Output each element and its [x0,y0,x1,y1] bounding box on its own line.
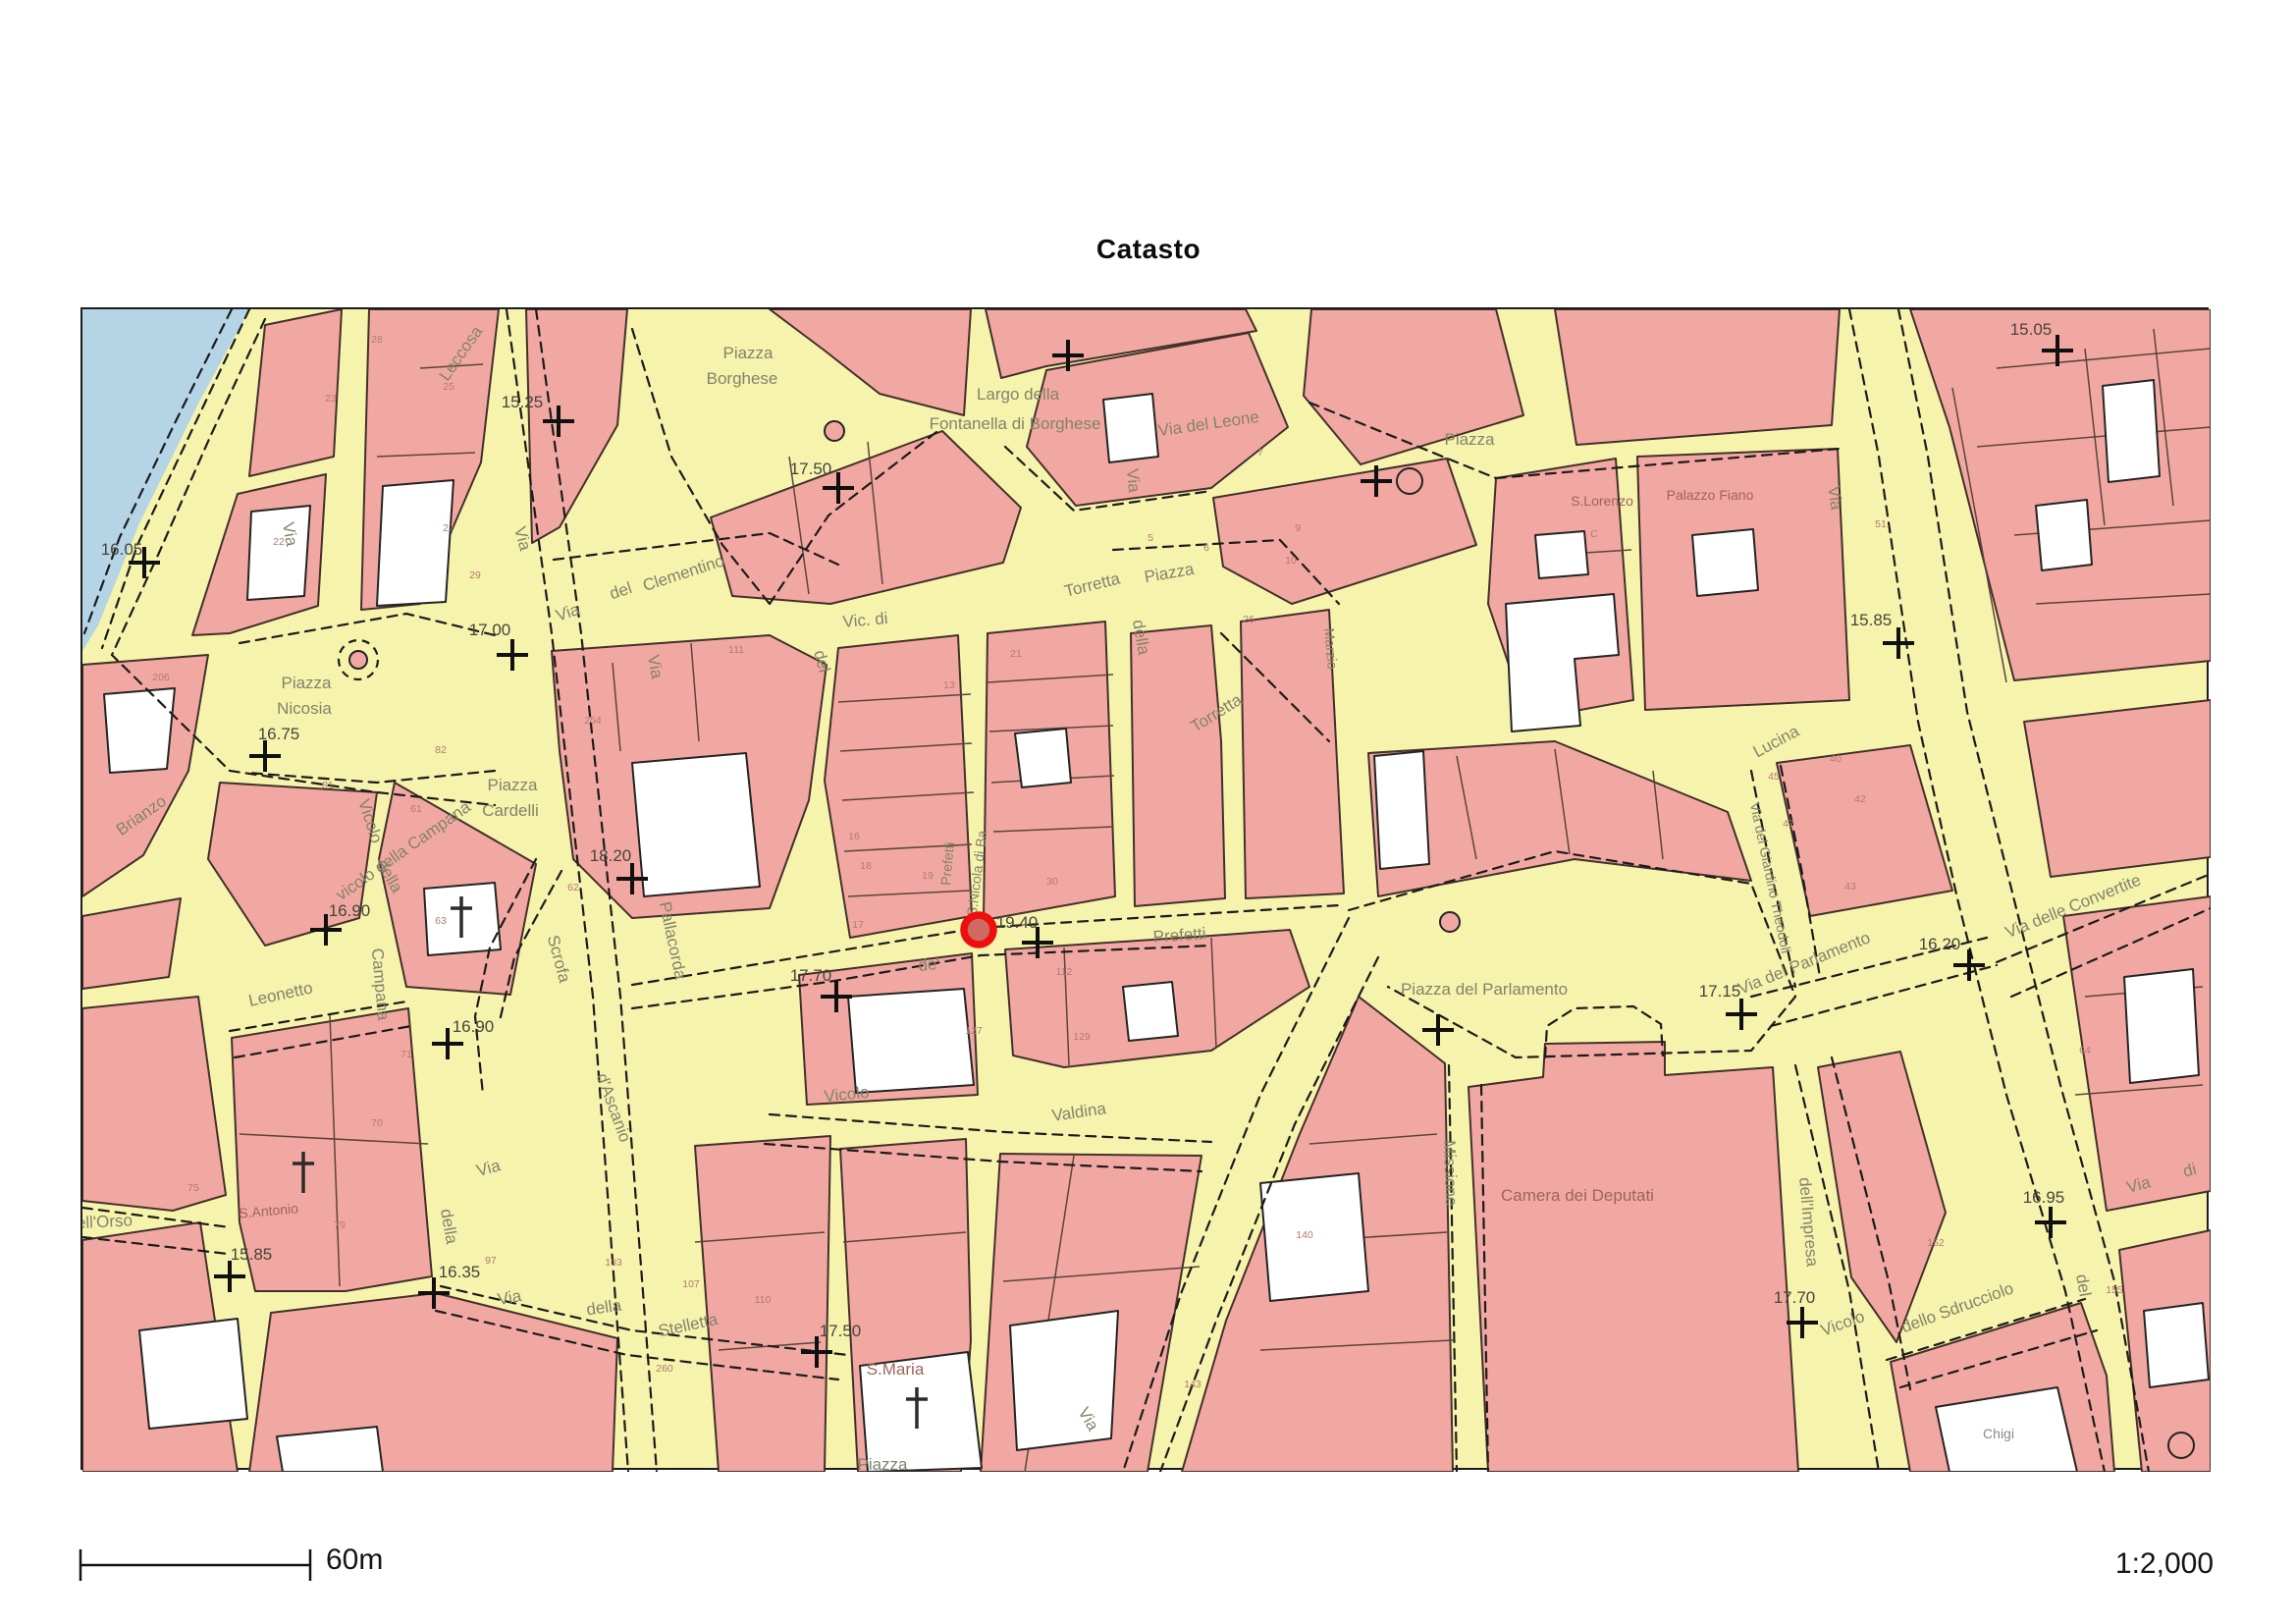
city-block [1131,625,1225,906]
building-footprint [1015,729,1071,787]
city-block [2024,700,2211,877]
svg-text:152: 152 [1927,1237,1945,1249]
city-block [770,309,971,415]
map-label: Scrofa [544,933,574,985]
map-ratio-label: 1:2,000 [2115,1547,2214,1581]
svg-text:30: 30 [1046,876,1058,888]
svg-text:22: 22 [273,536,285,548]
building-footprint [2036,500,2092,570]
svg-text:18.20: 18.20 [590,846,632,865]
building-footprint [1374,751,1429,869]
map-label: Via [1123,468,1144,494]
map-label: della [437,1208,461,1246]
svg-text:26: 26 [1243,614,1255,625]
map-label: Vic. di [842,609,888,631]
svg-text:97: 97 [485,1255,497,1267]
svg-text:23: 23 [325,393,337,405]
svg-text:17.70: 17.70 [790,966,832,985]
building-footprint [632,753,760,896]
scale-bar [79,1542,471,1591]
map-label: Camera dei Deputati [1501,1186,1654,1205]
svg-text:17.50: 17.50 [820,1322,862,1340]
svg-text:13: 13 [943,679,955,691]
map-label: Fontanella di Borghese [930,414,1101,433]
city-block [1777,745,1952,916]
map-label: Missione [1440,1140,1461,1207]
svg-text:19: 19 [922,870,934,882]
building-footprint [848,989,974,1093]
map-label: Via [474,1156,503,1180]
building-footprint [2103,380,2160,482]
svg-text:40: 40 [1830,753,1842,765]
svg-text:260: 260 [656,1363,673,1375]
svg-text:111: 111 [728,644,744,656]
map-label: del [2072,1272,2095,1298]
city-block [1910,309,2211,680]
map-label: Nicosia [277,699,332,718]
svg-text:17: 17 [852,919,864,931]
svg-text:6: 6 [1203,542,1209,554]
svg-text:206: 206 [152,672,170,683]
map-label: de' [917,954,940,975]
svg-text:17.70: 17.70 [1774,1288,1816,1307]
svg-text:7: 7 [1257,447,1263,459]
svg-text:21: 21 [1010,648,1022,660]
building-footprint [1692,529,1758,596]
svg-text:16.05: 16.05 [101,540,143,559]
building-footprint [1010,1311,1118,1450]
map-label: Lucina [1750,722,1803,762]
svg-text:63: 63 [435,915,447,927]
map-label: Via [496,1286,523,1309]
map-label: S.Lorenzo [1571,493,1633,509]
map-label: S.Maria [867,1360,925,1379]
building-footprint [2124,969,2199,1083]
svg-text:140: 140 [1296,1229,1313,1241]
svg-text:17.15: 17.15 [1699,982,1741,1001]
svg-text:16.90: 16.90 [453,1017,495,1036]
map-label: Via [554,600,582,625]
map-label: dell'Orso [82,1211,133,1232]
svg-text:16.75: 16.75 [258,725,300,743]
svg-text:18: 18 [860,860,872,872]
map-label: Via [1824,485,1845,512]
map-label: Vicolo [824,1083,871,1107]
svg-text:79: 79 [334,1219,346,1231]
map-label: della [585,1296,623,1320]
cadastral-map: 16.0515.2517.0016.7517.5018.2017.7019.40… [80,307,2209,1470]
scale-label: 60m [326,1543,383,1577]
map-label: Palazzo Fiano [1667,487,1754,503]
svg-text:107: 107 [682,1278,700,1290]
svg-text:15.05: 15.05 [2010,320,2053,339]
map-label: Piazza del Parlamento [1401,980,1568,999]
map-label: Valdina [1050,1099,1107,1125]
map-label: del [608,578,634,603]
map-label: Leonetto [247,978,315,1009]
city-block [1213,459,1476,604]
building-footprint [1535,531,1588,578]
map-label: dell'Impresa [1795,1176,1822,1268]
svg-text:16.35: 16.35 [439,1263,481,1281]
svg-text:17.00: 17.00 [469,621,511,639]
building-footprint [1260,1173,1368,1301]
map-label: Piazza [857,1455,908,1472]
map-label: Piazza [1444,430,1495,449]
svg-text:16.20: 16.20 [1919,935,1961,953]
svg-text:110: 110 [755,1294,772,1306]
svg-text:25: 25 [443,381,454,393]
svg-text:61: 61 [410,803,422,815]
svg-text:70: 70 [371,1117,383,1129]
map-label: Borghese [707,369,778,388]
svg-text:29: 29 [469,569,481,581]
svg-text:129: 129 [1073,1031,1091,1043]
city-block [1468,1042,1798,1472]
svg-text:143: 143 [1184,1379,1201,1390]
svg-text:15.25: 15.25 [502,393,544,411]
svg-text:43: 43 [1844,881,1856,893]
map-label: Piazza [487,776,538,794]
city-block [1818,1052,1946,1342]
svg-text:17.50: 17.50 [790,460,832,478]
building-footprint [104,688,175,773]
svg-text:81: 81 [322,780,334,791]
svg-text:112: 112 [1056,966,1073,978]
city-block [208,783,377,946]
city-block [82,898,181,989]
city-block [1555,309,1840,445]
svg-text:9: 9 [1295,522,1301,534]
map-label: Vicolo [1818,1307,1867,1340]
svg-text:27: 27 [443,522,454,534]
building-footprint [2144,1303,2209,1387]
page: Catasto 16.0515.2517.0016.7517.5018.2017… [0,0,2296,1624]
map-label: Campana [368,947,393,1022]
svg-text:64: 64 [2079,1045,2091,1056]
svg-text:42: 42 [1854,793,1866,805]
map-label: Piazza [281,674,332,692]
building-footprint [1123,982,1178,1041]
svg-text:C: C [1590,528,1598,540]
building-footprint [1103,394,1158,462]
svg-text:19.40: 19.40 [996,913,1039,932]
svg-text:51: 51 [1875,518,1887,530]
svg-text:71: 71 [400,1049,412,1060]
map-label: Piazza [722,344,774,362]
map-label: Piazza [1143,560,1196,587]
svg-text:254: 254 [584,715,602,727]
svg-text:45: 45 [1768,771,1780,783]
svg-text:28: 28 [371,334,383,346]
svg-text:47: 47 [1783,818,1794,830]
map-title: Catasto [1001,234,1296,265]
map-label: Via del Parlamento [1735,928,1873,998]
svg-text:10: 10 [1285,555,1297,567]
city-block [82,997,226,1211]
svg-text:16: 16 [848,831,860,842]
svg-text:127: 127 [965,1025,983,1037]
svg-text:5: 5 [1148,532,1153,544]
svg-text:16.90: 16.90 [329,901,371,920]
location-marker[interactable] [964,915,993,945]
svg-text:15.85: 15.85 [231,1245,273,1264]
map-label: Clementino [640,551,726,595]
map-label: Prefetti [1152,924,1206,947]
map-label: Torretta [1062,568,1122,601]
svg-text:103: 103 [605,1257,622,1269]
svg-text:62: 62 [567,882,579,893]
building-footprint [139,1319,247,1429]
svg-text:75: 75 [187,1182,199,1194]
svg-text:155: 155 [2106,1284,2123,1296]
svg-text:16.95: 16.95 [2023,1188,2065,1207]
map-label: Chigi [1983,1426,2014,1441]
map-canvas: 16.0515.2517.0016.7517.5018.2017.7019.40… [82,309,2211,1472]
building-footprint [247,506,310,600]
building-footprint [377,480,454,606]
svg-text:15.85: 15.85 [1850,611,1893,629]
map-label: Cardelli [482,801,539,820]
city-block [711,431,1021,604]
svg-text:82: 82 [435,744,447,756]
map-label: Largo della [977,385,1060,404]
